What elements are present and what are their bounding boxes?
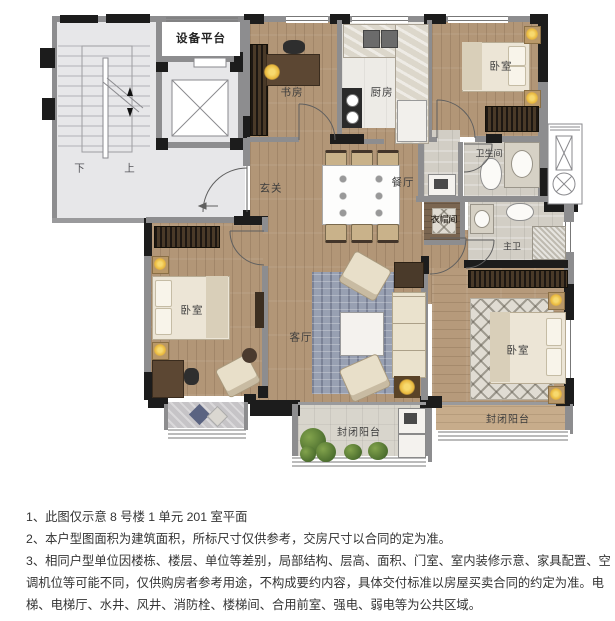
elevator-symbol — [172, 58, 228, 136]
stair-rail — [103, 58, 108, 158]
floor-plan: 设备平台 下 上 书房 厨房 卧室 卫生间 玄关 餐厅 衣帽间 主卫 卧室 客厅… — [0, 0, 615, 500]
label-stair-down: 下 — [74, 161, 86, 176]
label-bathroom: 卫生间 — [475, 147, 502, 160]
floorplan-page: 设备平台 下 上 书房 厨房 卧室 卫生间 玄关 餐厅 衣帽间 主卫 卧室 客厅… — [0, 0, 615, 621]
bedroom-tr-door-arc — [437, 100, 475, 138]
label-foyer: 玄关 — [260, 181, 283, 196]
label-living: 客厅 — [290, 330, 313, 345]
label-balcony-right: 封闭阳台 — [486, 411, 530, 426]
disclaimer-notes: 1、此图仅示意 8 号楼 1 单元 201 室平面 2、本户型图面积为建筑面积，… — [26, 506, 615, 616]
study-door-arc — [299, 104, 335, 140]
bedroom-left-door-arc — [230, 231, 264, 265]
door-arcs — [199, 100, 494, 274]
entry-door-arc — [203, 168, 247, 212]
note-line-3: 3、相同户型单位因楼栋、楼层、单位等差别，局部结构、层高、面积、门室、室内装修示… — [26, 550, 615, 616]
entry-arrow-icon — [199, 203, 206, 209]
master-bath-door-arc — [466, 240, 494, 268]
bedroom-br-door-arc — [430, 238, 466, 274]
note-line-1: 1、此图仅示意 8 号楼 1 单元 201 室平面 — [26, 506, 615, 528]
label-bedroom-br: 卧室 — [507, 343, 530, 358]
label-master-bath: 主卫 — [503, 240, 521, 253]
label-bedroom-left: 卧室 — [181, 303, 204, 318]
label-bedroom-tr: 卧室 — [490, 59, 513, 74]
label-equipment-platform: 设备平台 — [176, 30, 226, 46]
note-line-2: 2、本户型图面积为建筑面积，所标尺寸仅供参考，交房尺寸以合同的定为准。 — [26, 528, 615, 550]
label-cloakroom: 衣帽间 — [430, 213, 457, 226]
label-study: 书房 — [281, 85, 304, 100]
shaft-symbol — [548, 124, 582, 204]
label-stair-up: 上 — [124, 161, 136, 176]
label-balcony-center: 封闭阳台 — [337, 424, 381, 439]
label-kitchen: 厨房 — [371, 85, 394, 100]
label-dining: 餐厅 — [392, 175, 415, 190]
